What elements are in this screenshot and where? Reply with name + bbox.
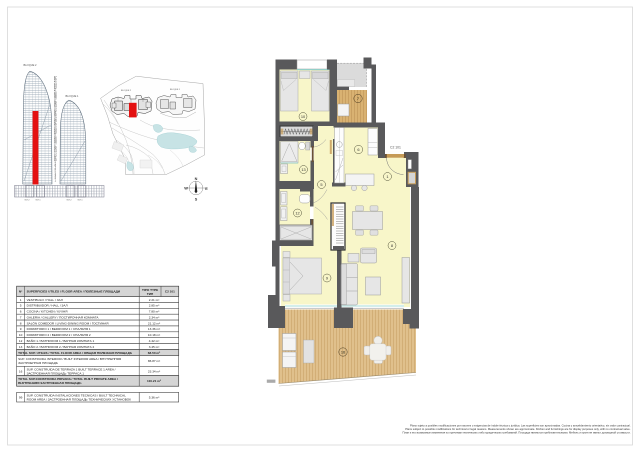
- svg-text:23.34 m²: 23.34 m²: [148, 369, 160, 373]
- svg-text:13: 13: [301, 167, 305, 172]
- svg-text:Plans subject to possible modi: Plans subject to possible modifications …: [405, 427, 630, 431]
- svg-text:COCINA / KITCHEN / КУХНЯ: COCINA / KITCHEN / КУХНЯ: [27, 310, 68, 314]
- svg-text:9: 9: [326, 276, 328, 281]
- svg-text:Plano sujeto a posibles modifi: Plano sujeto a posibles modificaciones p…: [410, 423, 631, 427]
- svg-text:ROOM AREA / ЗАСТРОЕННАЯ ПЛОЩАД: ROOM AREA / ЗАСТРОЕННАЯ ПЛОЩАДЬ ТЕХНИЧЕС…: [27, 398, 132, 402]
- svg-text:S: S: [195, 198, 198, 202]
- svg-text:8: 8: [20, 321, 22, 325]
- svg-text:7: 7: [20, 315, 22, 319]
- svg-text:TOTAL SUP. UTILES / TOTAL FLOO: TOTAL SUP. UTILES / TOTAL FLOOR AREA / О…: [18, 351, 133, 355]
- svg-text:16: 16: [19, 369, 23, 373]
- svg-text:E: E: [205, 187, 208, 191]
- svg-text:SOT.1: SOT.1: [36, 199, 41, 201]
- svg-text:5: 5: [320, 182, 322, 187]
- svg-text:8: 8: [391, 243, 393, 248]
- svg-text:2.21 m²: 2.21 m²: [149, 298, 160, 302]
- svg-text:6: 6: [20, 310, 22, 314]
- svg-text:SOT.2: SOT.2: [67, 199, 72, 201]
- svg-text:10: 10: [19, 333, 23, 337]
- svg-text:16: 16: [341, 350, 345, 355]
- svg-text:1: 1: [386, 174, 388, 179]
- svg-text:4.42 m²: 4.42 m²: [149, 339, 160, 343]
- svg-text:DORMITORIO 1 / BEDROOM 1 / СПА: DORMITORIO 1 / BEDROOM 1 / СПАЛЬНЯ 1: [27, 327, 91, 331]
- svg-text:ВНУТРЕННЯЯ ЗАСТРОЕННАЯ ПЛОЩАДЬ: ВНУТРЕННЯЯ ЗАСТРОЕННАЯ ПЛОЩАДЬ: [18, 381, 82, 385]
- svg-text:SALÓN COMEDOR / LIVING-DINING: SALÓN COMEDOR / LIVING-DINING ROOM / ГОС…: [27, 320, 109, 325]
- svg-text:10.18 m²: 10.18 m²: [148, 333, 160, 337]
- svg-text:SOT.2: SOT.2: [25, 199, 30, 201]
- svg-text:6: 6: [357, 147, 359, 152]
- svg-text:BLOQUE 1: BLOQUE 1: [66, 94, 80, 98]
- svg-text:13: 13: [19, 345, 23, 349]
- svg-text:5: 5: [20, 304, 22, 308]
- svg-text:SUPERFICIES UTILES / FLOOR ARE: SUPERFICIES UTILES / FLOOR AREA / ПОЛЕЗН…: [27, 290, 121, 294]
- svg-text:2.85 m²: 2.85 m²: [149, 304, 160, 308]
- svg-text:План и его возможные изменения: План и его возможные изменения по причин…: [403, 431, 631, 435]
- svg-text:110.21 m²: 110.21 m²: [147, 379, 161, 383]
- svg-text:C2 101: C2 101: [165, 290, 175, 294]
- svg-text:7: 7: [357, 96, 359, 101]
- svg-text:1: 1: [20, 298, 22, 302]
- svg-text:21.12 m²: 21.12 m²: [148, 321, 160, 325]
- svg-text:ТИП: ТИП: [147, 292, 154, 296]
- svg-text:GALERIA / GALLERY / ПОСТИРОЧНА: GALERIA / GALLERY / ПОСТИРОЧНАЯ КОМНАТА: [27, 315, 100, 319]
- svg-text:12: 12: [295, 211, 299, 216]
- svg-text:12: 12: [19, 339, 23, 343]
- svg-text:9: 9: [20, 327, 22, 331]
- svg-text:BLOQUE 1: BLOQUE 1: [170, 89, 181, 91]
- svg-text:5.36 m²: 5.36 m²: [149, 396, 160, 400]
- svg-text:68.50 m²: 68.50 m²: [148, 351, 160, 355]
- svg-text:DISTRIBUIDOR / HALL / ЗАЛ: DISTRIBUIDOR / HALL / ЗАЛ: [27, 304, 68, 308]
- svg-text:ЗАСТРОЕННАЯ ПЛОЩАДЬ: ЗАСТРОЕННАЯ ПЛОЩАДЬ: [18, 361, 58, 365]
- svg-text:7.80 m²: 7.80 m²: [149, 310, 160, 314]
- svg-text:2.34 m²: 2.34 m²: [149, 315, 160, 319]
- svg-text:DORMITORIO 2 / BEDROOM 2 / СПА: DORMITORIO 2 / BEDROOM 2 / СПАЛЬНЯ 2: [27, 333, 91, 337]
- svg-text:SOT.1: SOT.1: [78, 199, 83, 201]
- svg-text:ЗАСТРОЕННАЯ ПЛОЩАДЬ ТЕРРАСА 1: ЗАСТРОЕННАЯ ПЛОЩАДЬ ТЕРРАСА 1: [27, 371, 85, 375]
- svg-text:BLOQUE 2: BLOQUE 2: [121, 90, 132, 92]
- svg-text:N: N: [195, 177, 198, 181]
- svg-text:BLOQUE 2: BLOQUE 2: [24, 63, 38, 67]
- svg-text:99: 99: [19, 396, 23, 400]
- svg-text:13.36 m²: 13.36 m²: [148, 327, 160, 331]
- svg-text:W: W: [184, 187, 188, 191]
- svg-text:BAÑO 1 / BATHROOM 1 / ВАННАЯ К: BAÑO 1 / BATHROOM 1 / ВАННАЯ КОМНАТА 1: [27, 338, 95, 343]
- svg-text:86.87 m²: 86.87 m²: [148, 359, 160, 363]
- svg-text:3.45 m²: 3.45 m²: [149, 345, 160, 349]
- svg-text:C2 101: C2 101: [390, 146, 401, 150]
- svg-text:VESTIBULO / HALL / ЗАЛ: VESTIBULO / HALL / ЗАЛ: [27, 298, 63, 302]
- svg-text:BAÑO 2 / BATHROOM 2 / ВАННАЯ К: BAÑO 2 / BATHROOM 2 / ВАННАЯ КОМНАТА 2: [27, 344, 95, 349]
